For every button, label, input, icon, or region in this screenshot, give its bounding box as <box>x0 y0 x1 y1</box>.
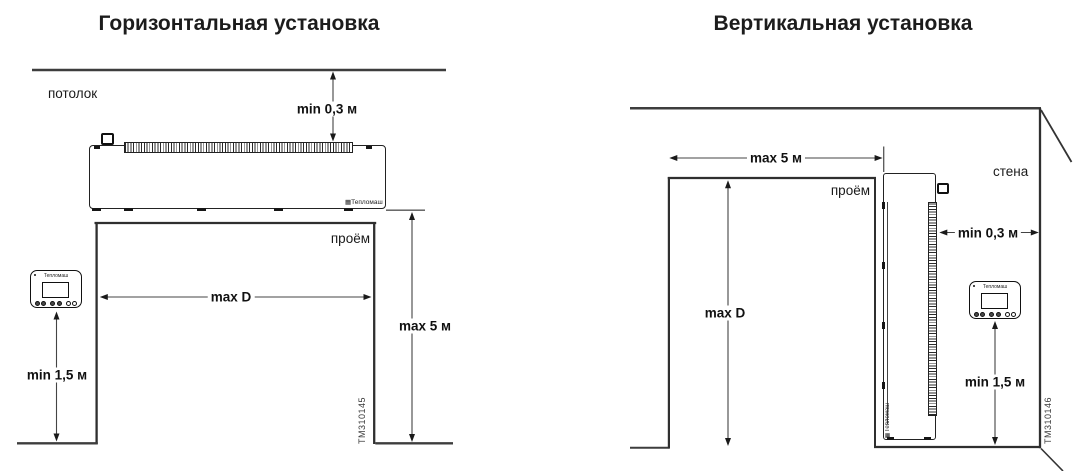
right-wall-break-diagonal-bottom <box>1041 449 1063 471</box>
remote-button <box>980 312 985 317</box>
left-dim-ceiling-arrow-down <box>330 134 336 142</box>
air-curtain-sensor-knob <box>101 133 114 145</box>
remote-buttons <box>31 301 81 306</box>
right-diagram-title: Вертикальная установка <box>714 12 973 36</box>
teplomash-logo-icon: ▦ <box>885 432 891 439</box>
wall-label: стена <box>993 164 1028 179</box>
left-dim-width-arrow-left <box>100 294 108 300</box>
left-dim-height-arrow-up <box>409 212 415 220</box>
right-dim-height-arrow-down <box>725 438 731 446</box>
right-dim-opening-height-label: max D <box>702 306 749 321</box>
air-curtain-sensor-knob-vertical <box>937 183 949 194</box>
right-dim-opening-width-label: max 5 м <box>747 151 805 166</box>
teplomash-logo-vertical: ▦Тепломаш <box>884 403 891 439</box>
ceiling-label: потолок <box>48 86 97 101</box>
right-figure-id: TM310146 <box>1043 394 1053 444</box>
left-dim-ceiling-gap-label: min 0,3 м <box>294 102 360 117</box>
right-dim-remote-height-label: min 1,5 м <box>962 375 1028 390</box>
right-opening-label: проём <box>820 183 870 198</box>
remote-logo: Тепломаш <box>970 284 1020 290</box>
remote-button <box>66 301 71 306</box>
left-dim-remote-height-label: min 1,5 м <box>24 368 90 383</box>
unit-foot <box>197 208 206 211</box>
unit-foot <box>124 208 133 211</box>
teplomash-logo-text: Тепломаш <box>885 403 891 432</box>
unit-side-tick <box>882 202 885 209</box>
remote-button <box>41 301 46 306</box>
left-dim-ceiling-arrow-up <box>330 72 336 80</box>
air-curtain-outlet-grille <box>124 142 353 153</box>
teplomash-logo-text: Тепломаш <box>351 199 383 206</box>
right-dim-wall-arrow-left <box>939 230 947 236</box>
remote-control: Тепломаш <box>30 270 82 308</box>
remote-button <box>35 301 40 306</box>
remote-button <box>1011 312 1016 317</box>
right-dim-wall-gap-label: min 0,3 м <box>955 225 1021 240</box>
teplomash-logo: ▦Тепломаш <box>345 198 383 206</box>
right-dim-width-arrow-left <box>669 155 677 161</box>
right-dim-height-arrow-up <box>725 180 731 188</box>
remote-control-right: Тепломаш <box>969 281 1021 319</box>
unit-side-tick <box>882 322 885 329</box>
right-dim-width-arrow-right <box>875 155 883 161</box>
left-dim-remote-arrow-down <box>54 434 60 442</box>
remote-button <box>974 312 979 317</box>
remote-display <box>981 293 1008 309</box>
remote-button <box>72 301 77 306</box>
left-dim-mount-height-label: max 5 м <box>396 319 454 334</box>
remote-logo: Тепломаш <box>31 273 81 279</box>
left-figure-id: TM310145 <box>357 396 367 444</box>
left-diagram-title: Горизонтальная установка <box>99 12 380 36</box>
remote-buttons <box>970 312 1020 317</box>
remote-button <box>996 312 1001 317</box>
unit-foot <box>274 208 283 211</box>
unit-side-tick <box>882 382 885 389</box>
air-curtain-unit-horizontal <box>89 145 386 209</box>
unit-side-tick <box>882 262 885 269</box>
unit-foot <box>924 437 931 440</box>
right-dim-remote-arrow-down <box>992 437 998 445</box>
remote-button <box>1005 312 1010 317</box>
remote-button <box>989 312 994 317</box>
unit-intake-line <box>887 202 888 424</box>
left-dim-remote-arrow-up <box>54 312 60 320</box>
air-curtain-outlet-grille-vertical <box>928 202 938 416</box>
right-wall-break-diagonal-top <box>1041 110 1072 162</box>
left-dim-opening-width-label: max D <box>208 290 255 305</box>
unit-top-tick <box>94 146 100 149</box>
right-dim-wall-arrow-right <box>1031 230 1039 236</box>
remote-button <box>50 301 55 306</box>
unit-top-tick <box>366 146 372 149</box>
left-dim-width-arrow-right <box>364 294 372 300</box>
left-dim-height-arrow-down <box>409 434 415 442</box>
remote-display <box>42 282 69 298</box>
remote-button <box>57 301 62 306</box>
unit-foot <box>92 208 101 211</box>
installation-diagram: Горизонтальная установка потолок min 0,3… <box>0 0 1092 471</box>
right-dim-remote-arrow-up <box>992 321 998 329</box>
left-opening-label: проём <box>316 231 370 246</box>
unit-foot <box>344 208 353 211</box>
